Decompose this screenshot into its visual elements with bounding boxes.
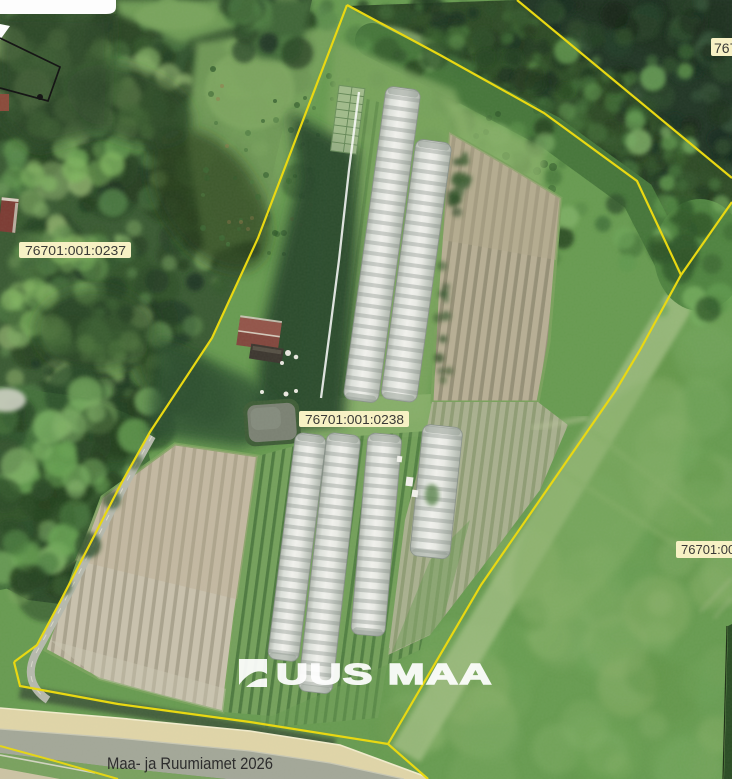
- svg-text:76701:001:0237: 76701:001:0237: [25, 243, 126, 258]
- svg-text:76701:001:0238: 76701:001:0238: [305, 412, 404, 427]
- svg-text:UUS MAA: UUS MAA: [276, 659, 493, 691]
- svg-text:767: 767: [714, 40, 732, 56]
- svg-text:Maa- ja Ruumiamet 2026: Maa- ja Ruumiamet 2026: [107, 755, 273, 773]
- svg-text:76701:00: 76701:00: [681, 542, 732, 557]
